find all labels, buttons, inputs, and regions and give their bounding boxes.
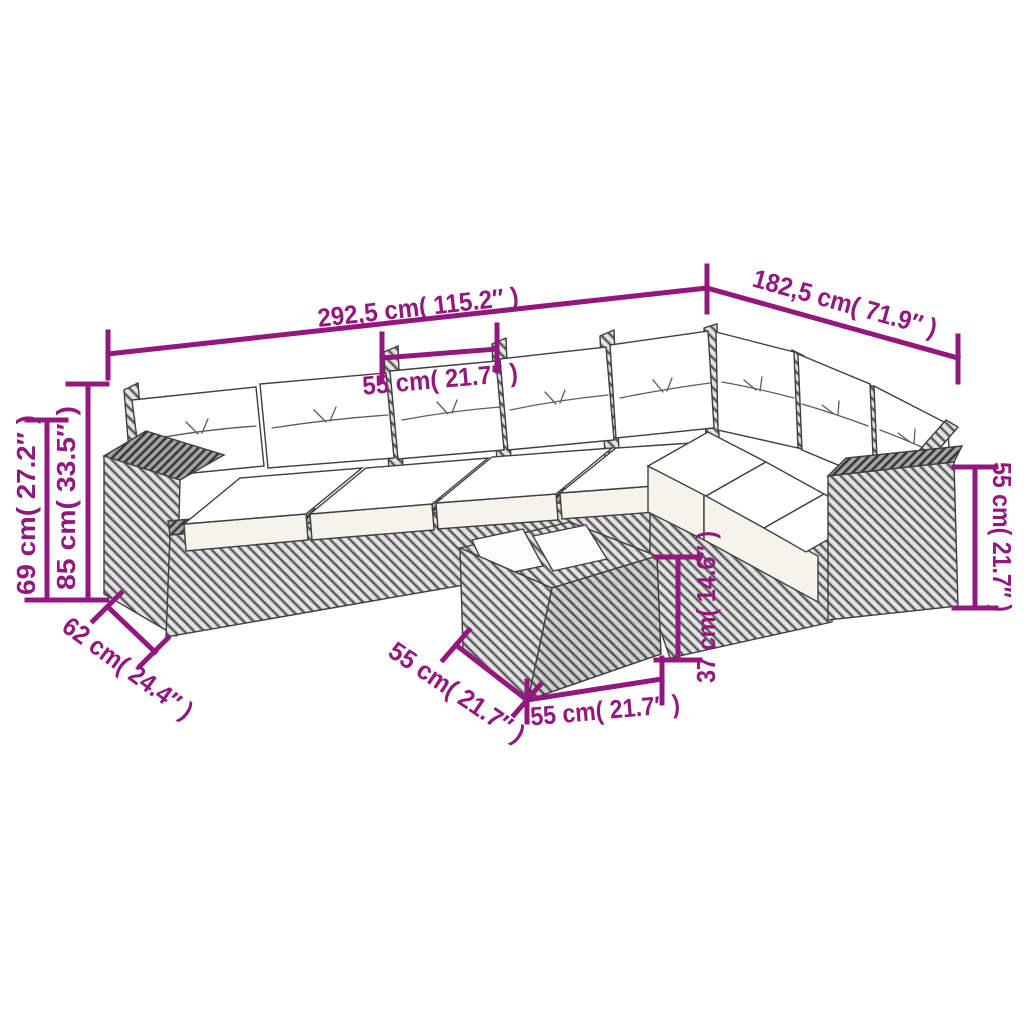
dim-backrest-height-label: 85 cm( 33.5″ ) [51,406,81,590]
back-pillow [500,347,614,450]
diagram-svg: 292,5 cm( 115.2″ ) 182,5 cm( 71.9″ ) 55 … [0,0,1024,1024]
dim-total-length-label: 292,5 cm( 115.2″ ) [316,281,520,333]
dimension-diagram: 292,5 cm( 115.2″ ) 182,5 cm( 71.9″ ) 55 … [0,0,1024,1024]
back-pillow [716,332,798,448]
dim-armrest-height-label: 55 cm( 21.7″ ) [987,462,1017,612]
dim-table-height-label: 37 cm( 14.6″ ) [691,531,721,683]
dim-total-depth-label: 182,5 cm( 71.9″ ) [749,263,940,343]
dim-seat-height-label: 69 cm( 27.2″ ) [11,415,41,595]
sofa-illustration [104,324,962,700]
